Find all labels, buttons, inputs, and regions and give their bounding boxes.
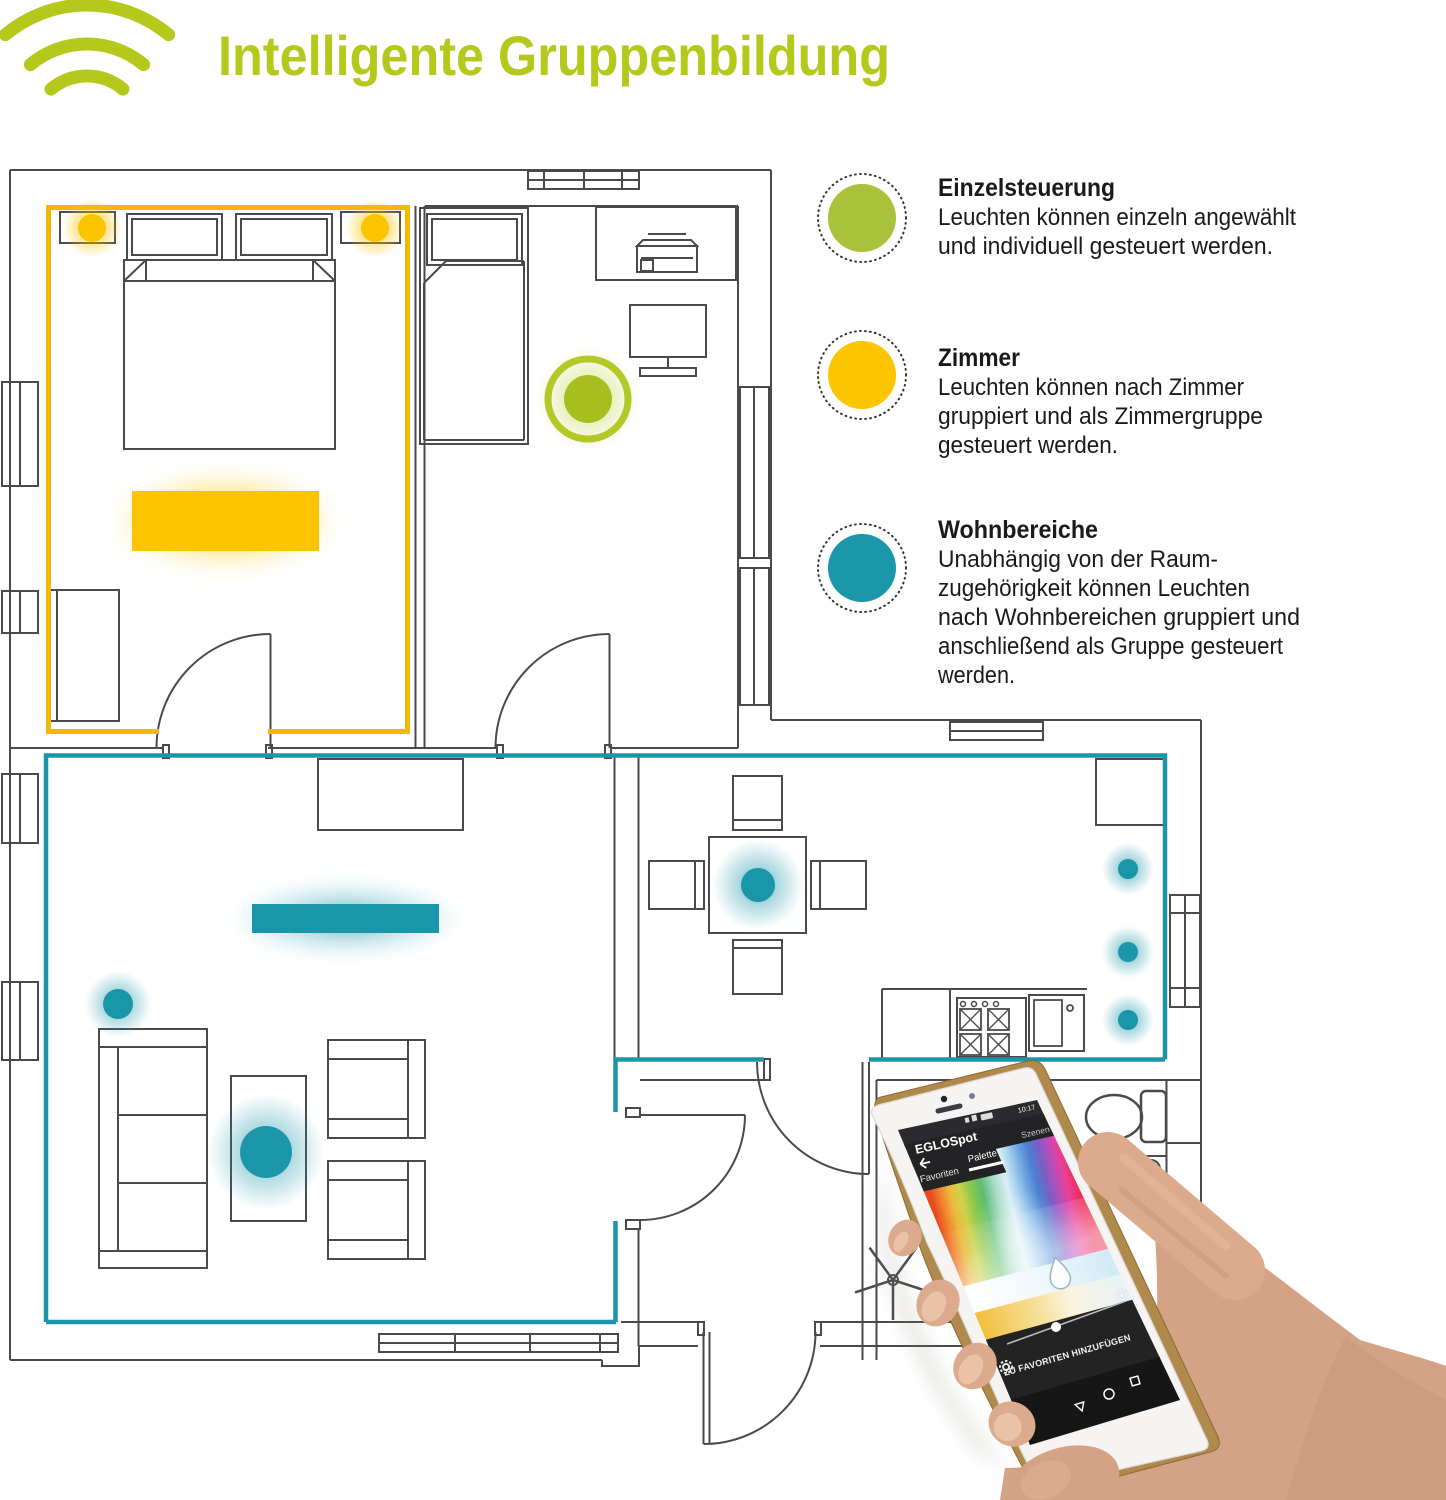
svg-text:Einzelsteuerung: Einzelsteuerung: [938, 174, 1115, 202]
svg-text:werden.: werden.: [937, 662, 1015, 689]
svg-text:Wohnbereiche: Wohnbereiche: [938, 516, 1098, 544]
svg-text:und individuell gesteuert werd: und individuell gesteuert werden.: [938, 233, 1273, 260]
svg-text:Zimmer: Zimmer: [938, 344, 1020, 372]
svg-text:gesteuert werden.: gesteuert werden.: [938, 432, 1118, 459]
svg-text:gruppiert und als Zimmergruppe: gruppiert und als Zimmergruppe: [938, 403, 1263, 430]
svg-text:Unabhängig von der Raum-: Unabhängig von der Raum-: [938, 546, 1218, 573]
svg-text:Leuchten können einzeln angewä: Leuchten können einzeln angewählt: [938, 204, 1296, 231]
svg-text:anschließend als Gruppe gesteu: anschließend als Gruppe gesteuert: [938, 633, 1283, 660]
svg-text:Leuchten können nach Zimmer: Leuchten können nach Zimmer: [938, 374, 1244, 401]
svg-text:Intelligente Gruppenbildung: Intelligente Gruppenbildung: [218, 24, 890, 87]
svg-text:zugehörigkeit können Leuchten: zugehörigkeit können Leuchten: [938, 575, 1250, 602]
svg-text:nach Wohnbereichen gruppiert u: nach Wohnbereichen gruppiert und: [938, 604, 1300, 631]
